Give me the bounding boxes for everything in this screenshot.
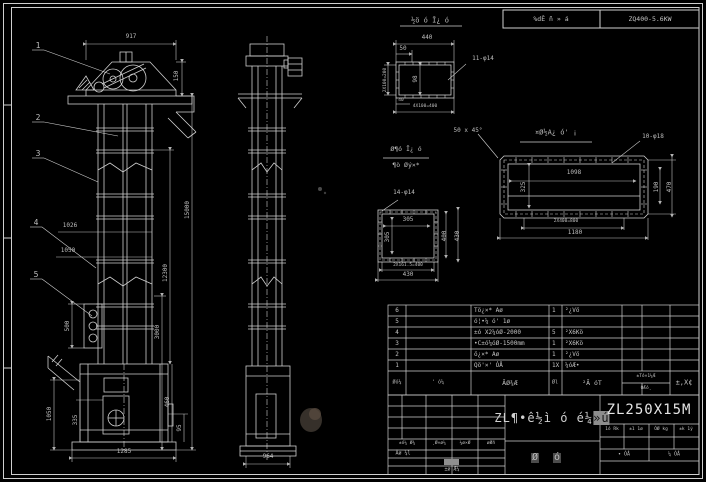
cad-drawing: %dÊ ñ » á ZQ400-5.6KW Øó¼ ' ó¼ ÃØ¾Æ Øl ²… — [0, 0, 706, 482]
side-view — [238, 36, 302, 468]
front-view — [30, 40, 196, 462]
drawing-frame — [4, 4, 703, 479]
title-block-grid — [388, 395, 699, 475]
smudge-artifact — [300, 187, 326, 432]
detail-flange-top — [384, 26, 466, 114]
bom-grid — [388, 305, 699, 395]
header-bar-lines — [503, 10, 699, 28]
detail-flange-right — [500, 141, 676, 240]
cad-linework — [0, 0, 706, 482]
detail-flange-small — [378, 158, 458, 282]
